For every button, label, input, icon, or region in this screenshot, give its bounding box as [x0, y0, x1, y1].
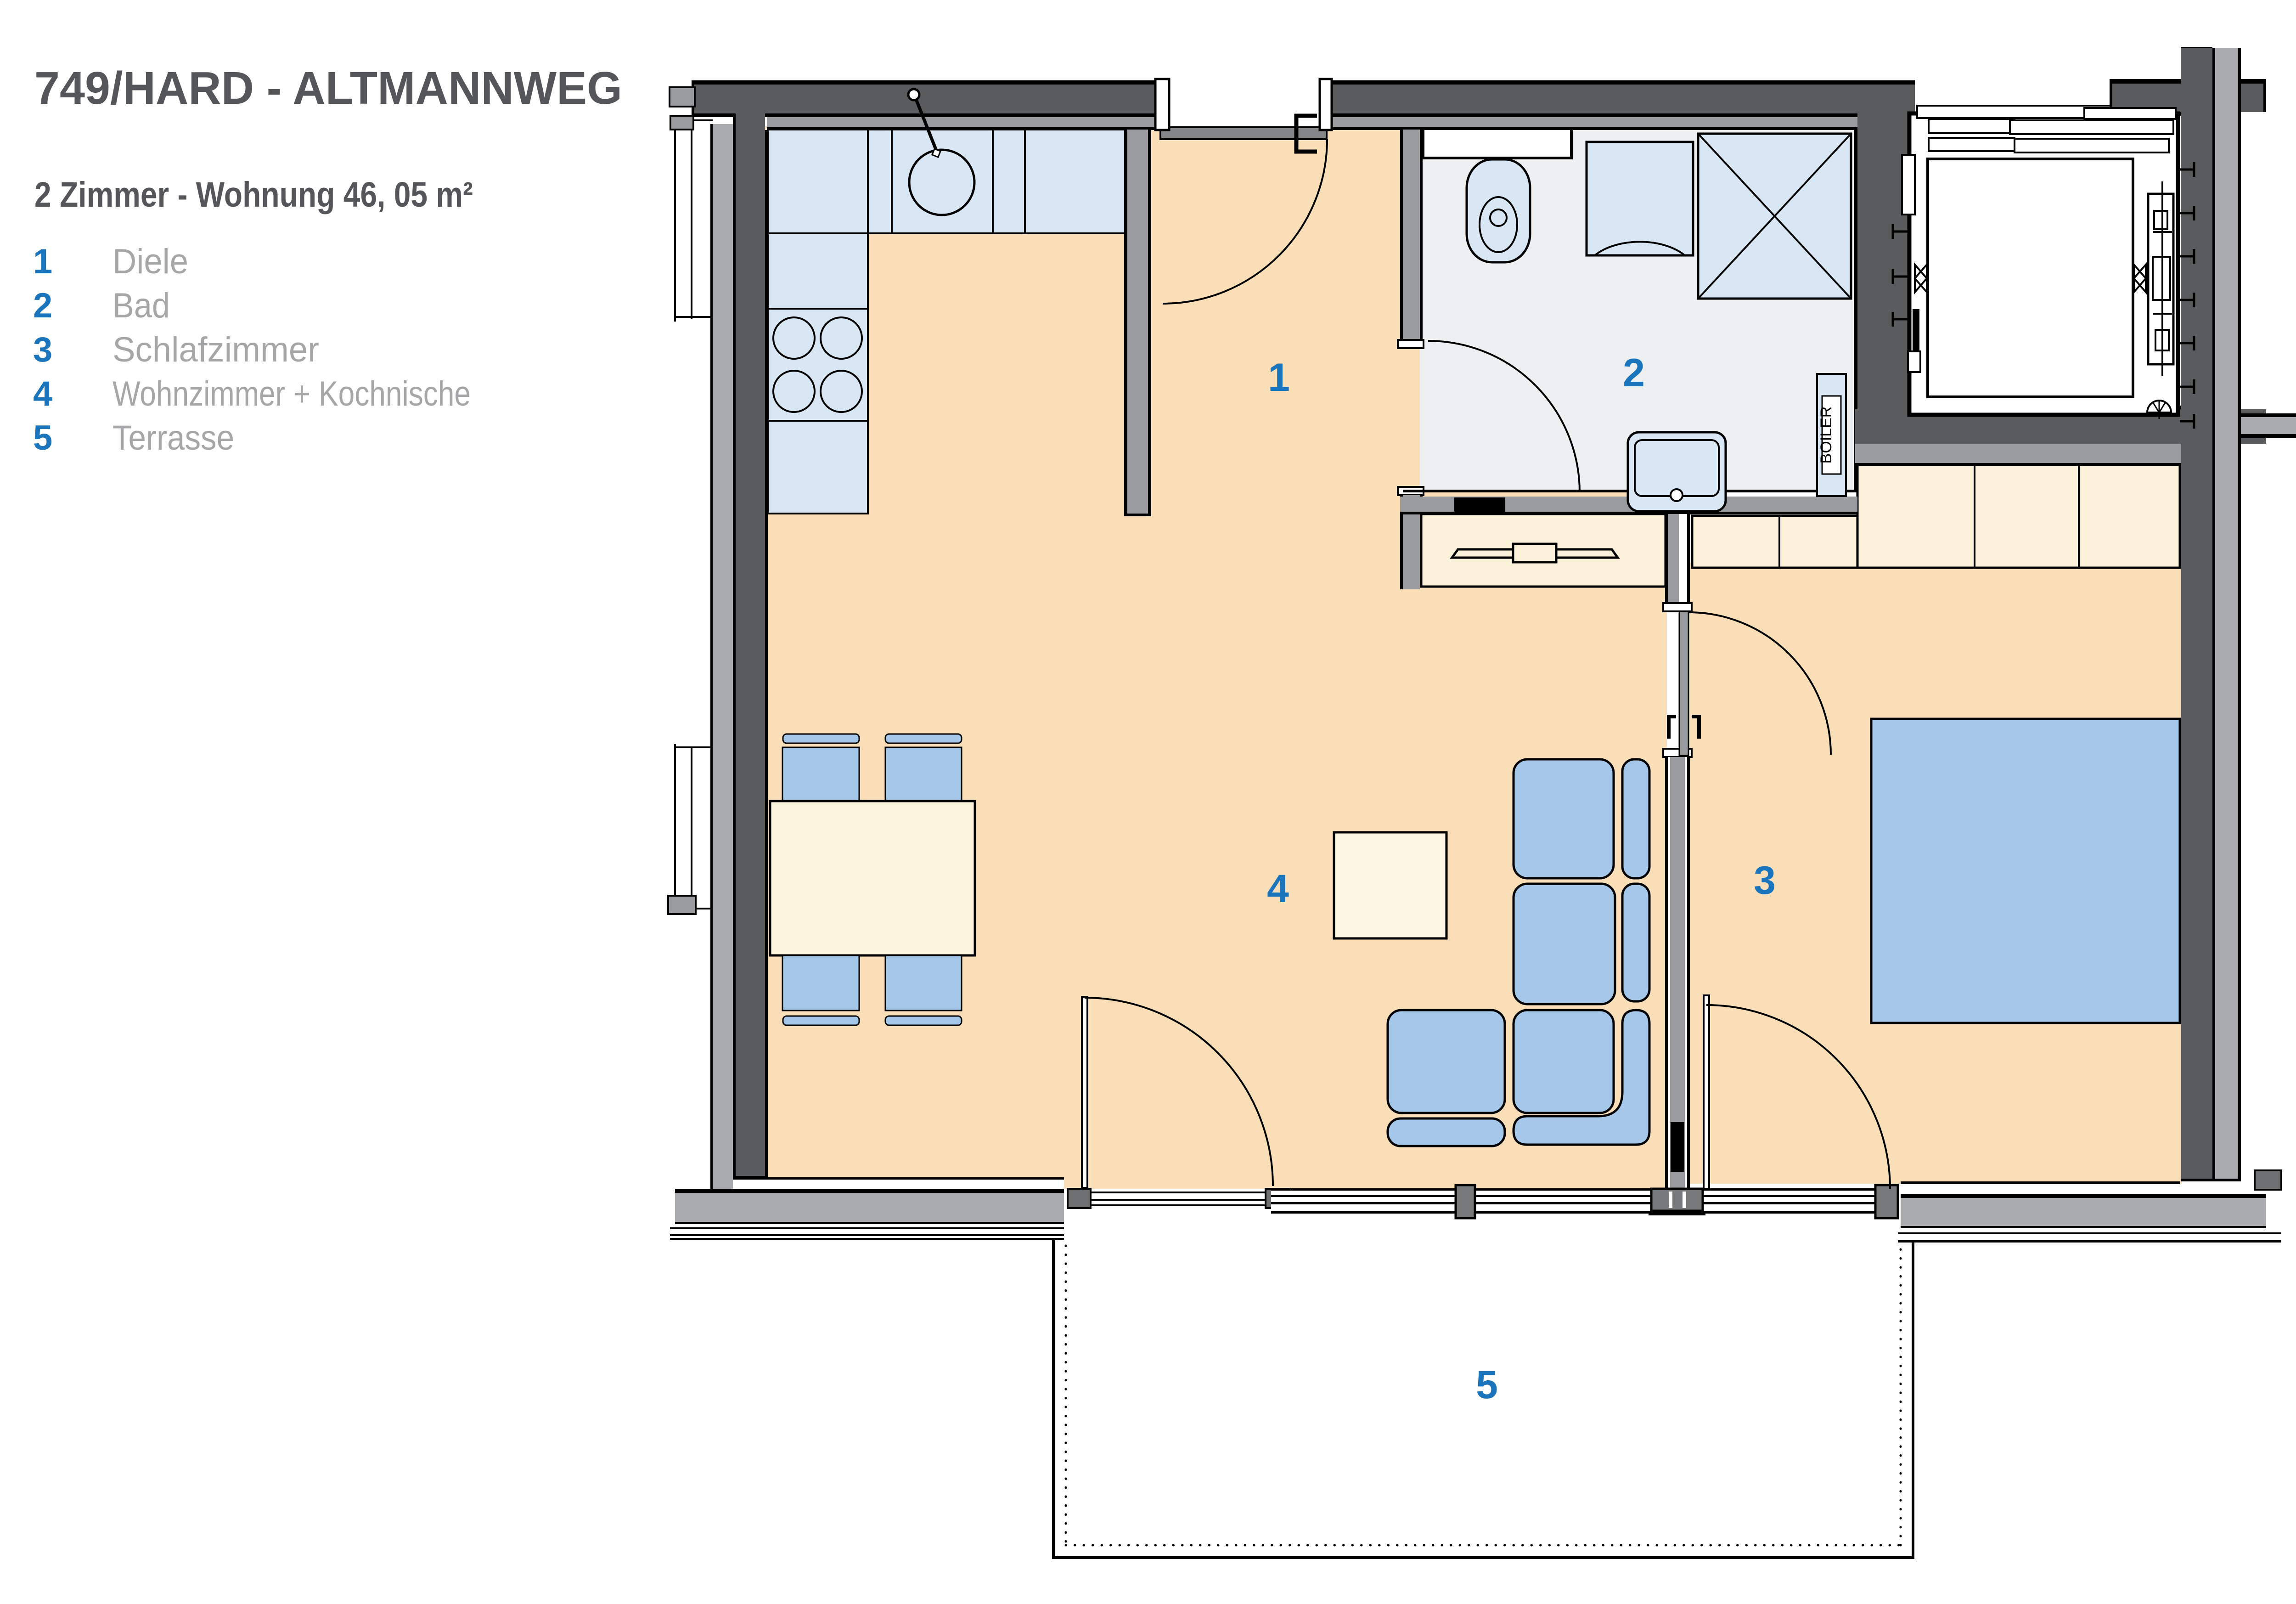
svg-text:Terrasse: Terrasse [113, 418, 234, 457]
svg-text:BOILER: BOILER [1818, 407, 1835, 464]
svg-text:Schlafzimmer: Schlafzimmer [113, 330, 319, 369]
svg-text:4: 4 [1267, 867, 1289, 911]
svg-text:1: 1 [33, 242, 52, 281]
svg-text:5: 5 [1476, 1363, 1498, 1407]
svg-text:2: 2 [1623, 351, 1645, 395]
svg-text:3: 3 [33, 330, 52, 369]
svg-text:2 Zimmer - Wohnung 46, 05 m²: 2 Zimmer - Wohnung 46, 05 m² [34, 175, 473, 215]
svg-text:1: 1 [1268, 356, 1290, 400]
svg-text:5: 5 [33, 418, 52, 457]
svg-text:Bad: Bad [113, 286, 170, 325]
svg-text:Diele: Diele [113, 242, 188, 281]
svg-text:Wohnzimmer + Kochnische: Wohnzimmer + Kochnische [113, 374, 471, 413]
svg-text:3: 3 [1754, 858, 1776, 903]
svg-text:2: 2 [33, 286, 52, 325]
svg-text:749/HARD - ALTMANNWEG: 749/HARD - ALTMANNWEG [34, 62, 622, 114]
svg-text:4: 4 [33, 374, 52, 413]
